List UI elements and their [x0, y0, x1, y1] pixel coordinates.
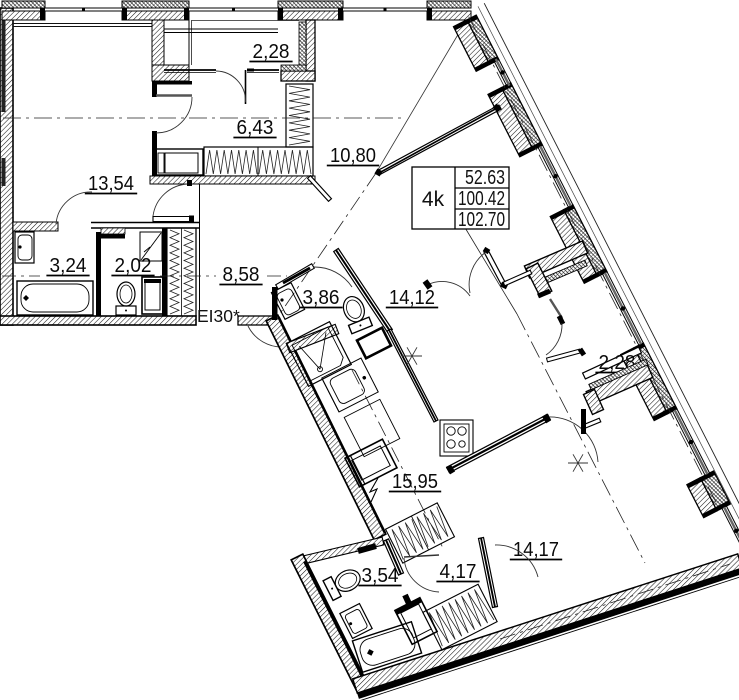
svg-text:2,28: 2,28 [253, 40, 290, 63]
svg-text:3,24: 3,24 [50, 254, 87, 277]
svg-text:3,86: 3,86 [303, 286, 340, 309]
svg-text:4,17: 4,17 [440, 560, 477, 583]
svg-text:52.63: 52.63 [465, 167, 505, 189]
svg-text:3,54: 3,54 [362, 564, 399, 587]
svg-text:102.70: 102.70 [458, 209, 505, 231]
svg-text:100.42: 100.42 [458, 188, 505, 210]
svg-text:EI30*: EI30* [197, 306, 240, 326]
svg-text:14,12: 14,12 [389, 286, 435, 309]
svg-text:2,02: 2,02 [115, 254, 152, 277]
svg-text:6,43: 6,43 [237, 116, 274, 139]
svg-text:8,58: 8,58 [223, 263, 260, 286]
svg-text:13,54: 13,54 [88, 172, 134, 195]
svg-text:4k: 4k [422, 188, 445, 211]
svg-text:10,80: 10,80 [330, 144, 376, 167]
svg-text:14,17: 14,17 [513, 538, 559, 561]
svg-text:15,95: 15,95 [392, 470, 438, 493]
